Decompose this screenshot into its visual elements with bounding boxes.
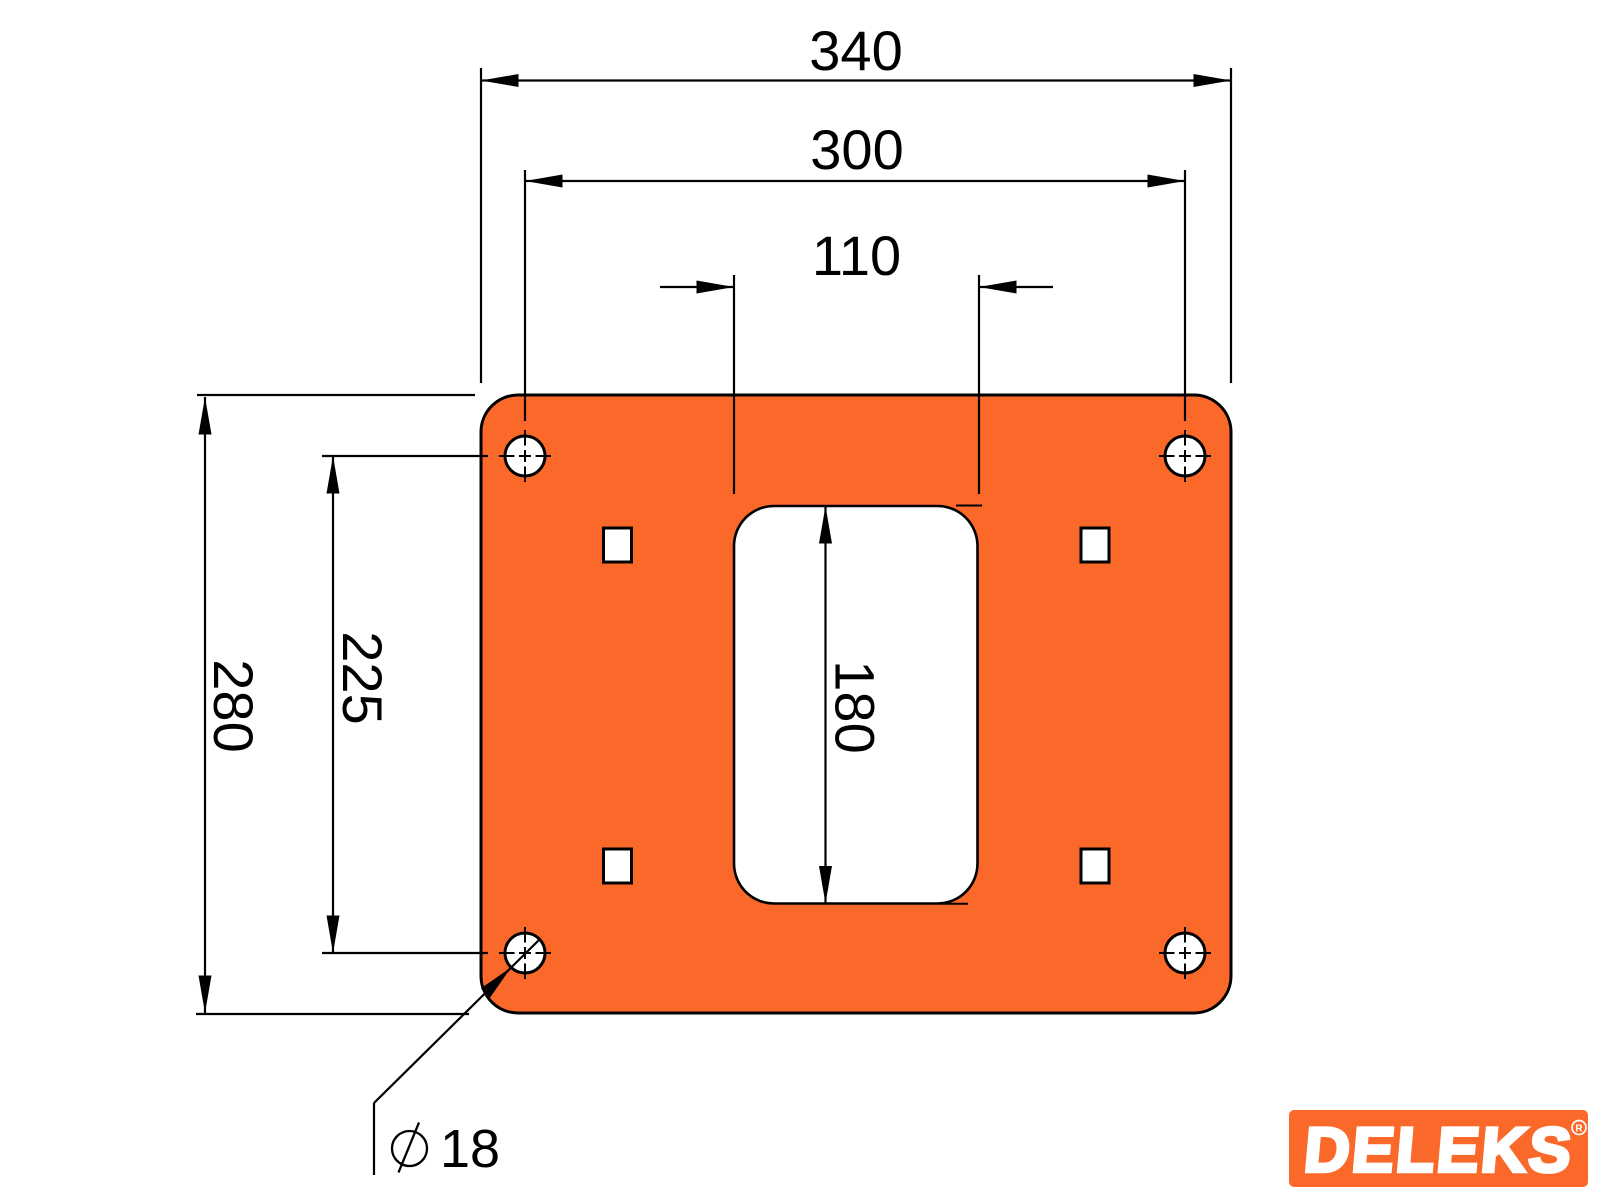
svg-text:340: 340 — [809, 19, 902, 82]
svg-text:225: 225 — [331, 631, 394, 724]
svg-text:110: 110 — [812, 224, 901, 287]
svg-text:18: 18 — [440, 1119, 500, 1179]
svg-text:280: 280 — [202, 659, 265, 752]
svg-text:180: 180 — [824, 660, 887, 753]
svg-text:300: 300 — [810, 118, 903, 181]
svg-text:DELEKS: DELEKS — [1301, 1116, 1576, 1186]
svg-text:R: R — [1575, 1124, 1583, 1135]
